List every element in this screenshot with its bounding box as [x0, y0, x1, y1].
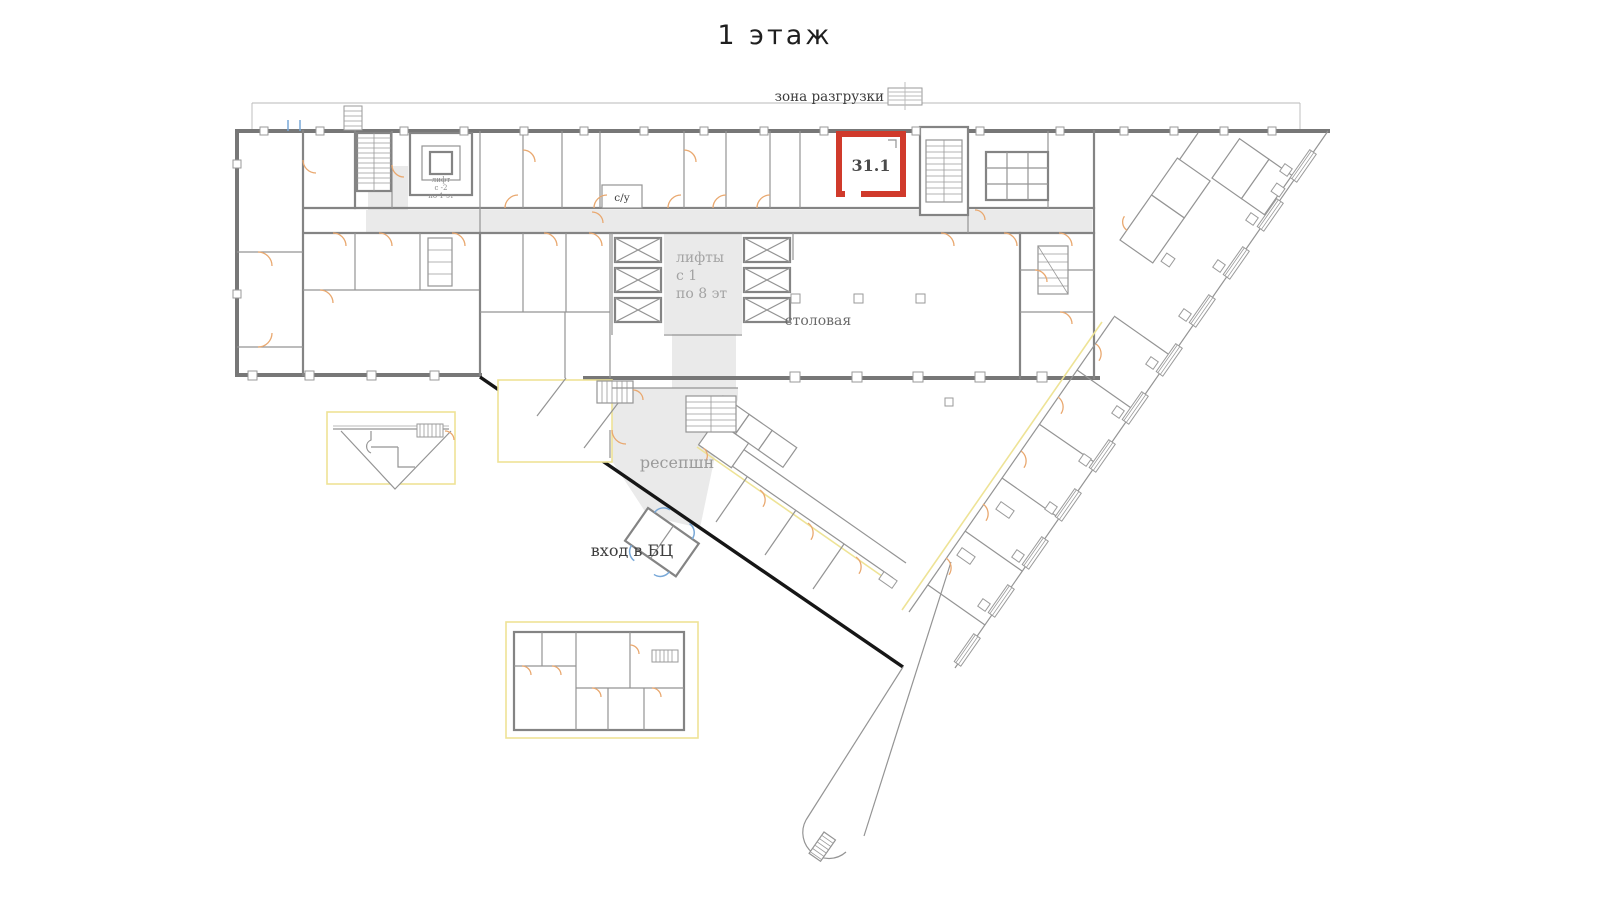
unloading-zone-label: зона разгрузки — [775, 89, 884, 105]
service-lift-label-3: по 1 эт — [428, 192, 454, 200]
reception-stair — [686, 396, 736, 432]
angled-room-cluster-a — [1112, 152, 1210, 263]
staircase-left — [357, 133, 391, 191]
inset-key-stair — [417, 424, 443, 437]
room-31-1-label: 31.1 — [852, 156, 891, 175]
service-lift-label-2: с -2 — [435, 184, 448, 192]
room-31-1-door-gap — [845, 190, 861, 198]
right-wing — [1020, 246, 1094, 312]
lifts-label-3: по 8 эт — [676, 286, 727, 302]
service-elevator: лифт с -2 по 1 эт — [410, 133, 472, 200]
spiral-stair — [1038, 246, 1068, 294]
stall-block — [986, 152, 1048, 200]
inset-detail-stair — [652, 650, 678, 662]
inset-detail-plan — [506, 622, 698, 738]
exterior-stair — [344, 106, 362, 130]
floor-plan-canvas: 1 этаж зона разгрузки с/у — [0, 0, 1600, 900]
service-lift-label-1: лифт — [432, 176, 451, 184]
gate-symbol — [888, 82, 922, 110]
entrance-label: вход в БЦ — [591, 541, 673, 560]
floor-title: 1 этаж — [717, 20, 832, 51]
floor-plan-page: 1 этаж зона разгрузки с/у — [0, 0, 1600, 900]
corridor-fill — [366, 166, 1092, 528]
inset-key-plan — [327, 412, 455, 489]
elevator-shafts-right — [744, 238, 790, 322]
elevator-shafts-left — [615, 238, 661, 322]
wc-label: с/у — [614, 192, 630, 204]
staircase-right — [920, 127, 968, 215]
reception-label: ресепшн — [640, 453, 714, 472]
ramp-stair — [809, 832, 835, 861]
canteen-label: столовая — [785, 313, 852, 329]
lifts-label-2: с 1 — [676, 268, 697, 284]
ramp — [803, 562, 951, 861]
canteen-area: столовая — [785, 233, 1047, 406]
unloading-zone: зона разгрузки — [252, 82, 1300, 131]
lifts-label-1: лифты — [676, 250, 724, 266]
room-31-1[interactable]: 31.1 — [839, 134, 903, 198]
